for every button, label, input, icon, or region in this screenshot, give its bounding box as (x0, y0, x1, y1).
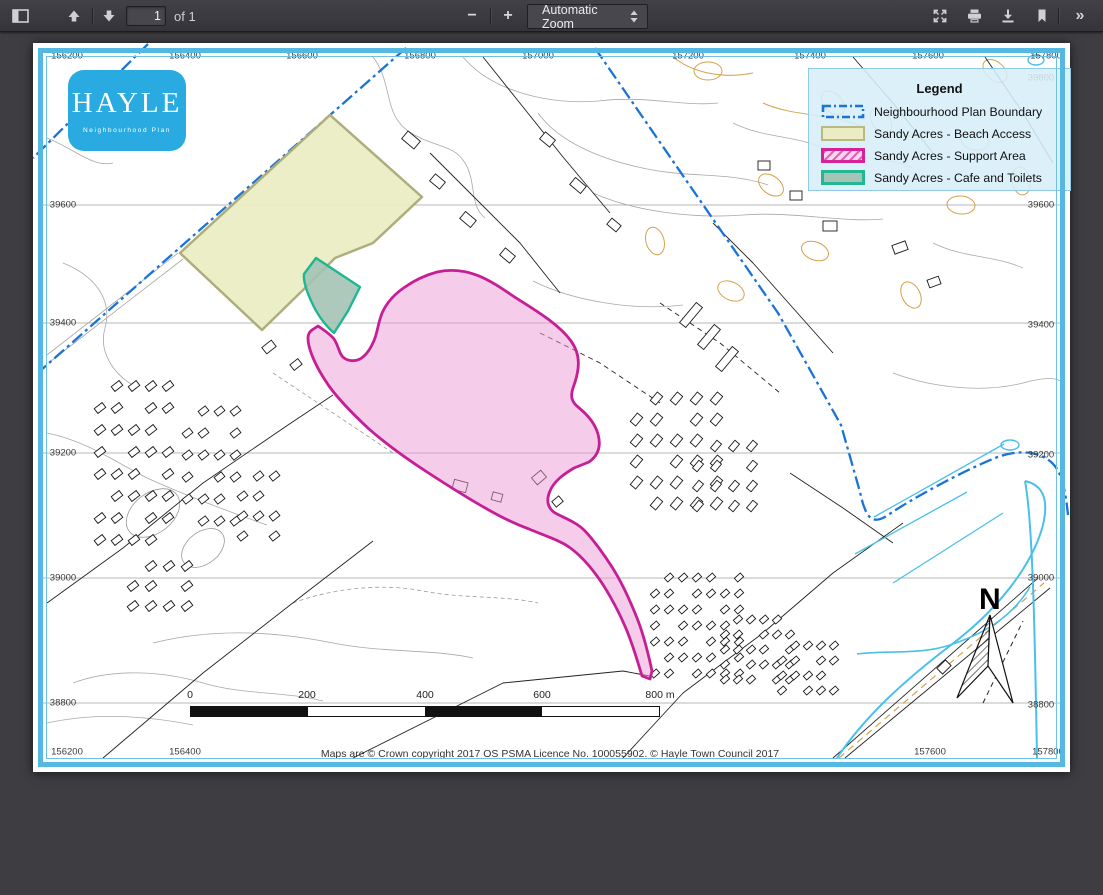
pdf-page: 156200 156400 156600 156800 157000 15720… (33, 43, 1070, 772)
grid-label: 39600 (50, 200, 76, 211)
grid-label: 39200 (1028, 450, 1054, 461)
grid-label: 156600 (286, 51, 318, 62)
scalebar-segment (191, 707, 308, 716)
more-tools-button[interactable]: » (1066, 4, 1094, 28)
zoom-select[interactable]: Automatic Zoom (527, 4, 648, 29)
presentation-mode-button[interactable] (926, 4, 954, 28)
next-page-button[interactable] (95, 4, 123, 28)
toolbar-divider (490, 8, 491, 24)
legend-item: Sandy Acres - Cafe and Toilets (821, 169, 1042, 186)
support-area (308, 270, 652, 679)
plus-icon: + (503, 8, 512, 24)
toolbar-divider (92, 8, 93, 24)
grid-label: 39600 (1028, 200, 1054, 211)
grid-label: 157800 (1032, 747, 1064, 758)
print-icon (966, 8, 983, 24)
grid-label: 39000 (1028, 573, 1054, 584)
hayle-logo: HAYLE Neighbourhood Plan (68, 70, 186, 151)
page-number-input[interactable] (126, 6, 166, 26)
scalebar-label: 800 m (645, 689, 674, 701)
map-legend: Legend Neighbourhood Plan Boundary Sandy… (808, 68, 1071, 191)
zoom-out-button[interactable]: − (458, 4, 486, 28)
scalebar-label: 600 (533, 689, 551, 701)
scalebar-label: 0 (187, 689, 193, 701)
fullscreen-icon (932, 8, 948, 24)
grid-label: 156400 (169, 747, 201, 758)
chevron-double-right-icon: » (1076, 7, 1085, 25)
grid-label: 39400 (1028, 320, 1054, 331)
zoom-in-button[interactable]: + (494, 4, 522, 28)
grid-label: 157200 (672, 51, 704, 62)
grid-label: 38800 (1028, 700, 1054, 711)
download-button[interactable] (994, 4, 1022, 28)
cafe-toilets-swatch-icon (821, 170, 865, 185)
grid-label: 156200 (51, 747, 83, 758)
grid-label: 157600 (912, 51, 944, 62)
legend-item-label: Sandy Acres - Support Area (874, 149, 1026, 163)
scalebar (190, 706, 660, 717)
page-count-label: of 1 (174, 9, 196, 24)
scalebar-label: 400 (416, 689, 434, 701)
sidebar-toggle-icon (12, 8, 29, 24)
legend-title: Legend (809, 81, 1070, 96)
grid-label: 156400 (169, 51, 201, 62)
bookmark-icon (1034, 8, 1050, 24)
logo-subtitle: Neighbourhood Plan (68, 127, 186, 134)
pdf-viewer-area: 156200 156400 156600 156800 157000 15720… (0, 32, 1103, 895)
scalebar-segment (308, 707, 425, 716)
grid-label: 39400 (50, 318, 76, 329)
legend-item-label: Neighbourhood Plan Boundary (874, 105, 1042, 119)
scalebar-segment (542, 707, 659, 716)
arrow-up-icon (66, 8, 82, 24)
pdf-toolbar: of 1 − + Automatic Zoom (0, 0, 1103, 32)
legend-item-label: Sandy Acres - Beach Access (874, 127, 1031, 141)
legend-item: Sandy Acres - Beach Access (821, 125, 1031, 142)
bookmark-button[interactable] (1028, 4, 1056, 28)
grid-label: 156200 (51, 51, 83, 62)
north-arrow: N (951, 583, 1031, 713)
legend-item-label: Sandy Acres - Cafe and Toilets (874, 171, 1042, 185)
beach-access-swatch-icon (821, 126, 865, 141)
legend-item: Neighbourhood Plan Boundary (821, 103, 1042, 120)
grid-label: 39200 (50, 448, 76, 459)
cafe-toilets-area (304, 258, 360, 333)
grid-label: 157600 (914, 747, 946, 758)
logo-title: HAYLE (68, 87, 186, 120)
zoom-select-value: Automatic Zoom (542, 3, 629, 31)
sidebar-toggle-button[interactable] (6, 4, 34, 28)
scalebar-label: 200 (298, 689, 316, 701)
print-button[interactable] (960, 4, 988, 28)
north-arrow-icon (951, 583, 1031, 713)
copyright-text: Maps are © Crown copyright 2017 OS PSMA … (230, 748, 870, 760)
grid-label: 156800 (404, 51, 436, 62)
grid-label: 38800 (50, 698, 76, 709)
minus-icon: − (467, 8, 476, 24)
legend-item: Sandy Acres - Support Area (821, 147, 1026, 164)
grid-label: 157000 (522, 51, 554, 62)
beach-access-area (180, 115, 422, 330)
support-area-swatch-icon (821, 148, 865, 163)
grid-label: 157400 (794, 51, 826, 62)
select-arrows-icon (629, 9, 639, 24)
toolbar-divider (1058, 8, 1059, 24)
grid-label: 39000 (50, 573, 76, 584)
previous-page-button[interactable] (60, 4, 88, 28)
download-icon (1000, 8, 1016, 24)
scalebar-segment (425, 707, 542, 716)
arrow-down-icon (101, 8, 117, 24)
grid-label: 157800 (1030, 51, 1062, 62)
boundary-swatch-icon (821, 104, 865, 119)
